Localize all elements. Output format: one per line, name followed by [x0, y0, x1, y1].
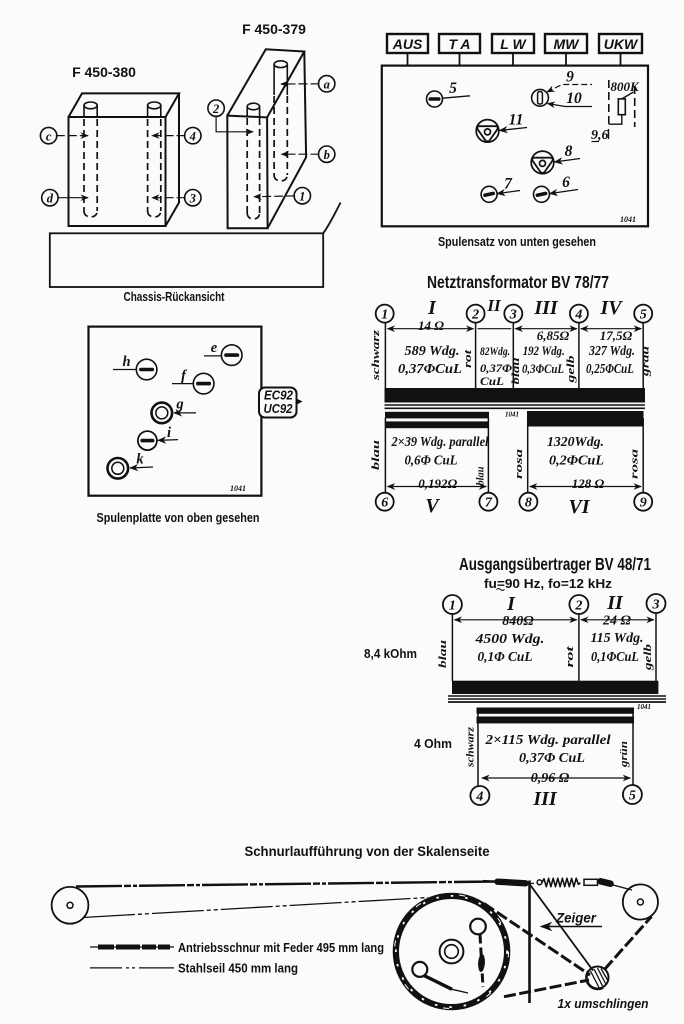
svg-text:1041: 1041: [620, 215, 636, 224]
svg-text:8: 8: [565, 143, 573, 160]
svg-text:0,96 Ω: 0,96 Ω: [531, 771, 570, 786]
svg-text:IV: IV: [599, 297, 623, 319]
svg-text:1x umschlingen: 1x umschlingen: [558, 996, 649, 1011]
svg-text:Spulenplatte von oben gesehen: Spulenplatte von oben gesehen: [97, 510, 260, 525]
svg-text:0,2ΦCuL: 0,2ΦCuL: [549, 454, 604, 469]
svg-text:1041: 1041: [230, 484, 246, 493]
svg-text:0,25ΦCuL: 0,25ΦCuL: [586, 362, 634, 377]
svg-text:2×39 Wdg. parallel: 2×39 Wdg. parallel: [391, 435, 489, 450]
svg-text:840Ω: 840Ω: [502, 614, 534, 629]
svg-text:3: 3: [509, 308, 517, 323]
svg-text:rot: rot: [462, 349, 474, 368]
svg-text:rosa: rosa: [629, 448, 641, 479]
svg-text:Chassis-Rückansicht: Chassis-Rückansicht: [124, 289, 226, 304]
svg-text:Schnurlaufführung von der Skal: Schnurlaufführung von der Skalenseite: [245, 843, 490, 859]
svg-text:589 Wdg.: 589 Wdg.: [405, 344, 460, 359]
svg-text:gelb: gelb: [565, 355, 577, 384]
svg-text:Zeiger: Zeiger: [555, 910, 597, 926]
svg-text:327 Wdg.: 327 Wdg.: [588, 344, 635, 359]
svg-text:0,37ΦCuL: 0,37ΦCuL: [398, 362, 462, 377]
svg-text:4 Ohm: 4 Ohm: [414, 737, 452, 751]
svg-text:14 Ω: 14 Ω: [418, 318, 444, 333]
svg-text:3: 3: [189, 192, 196, 206]
svg-text:5: 5: [640, 308, 647, 323]
svg-text:blau: blau: [510, 358, 522, 385]
svg-text:c: c: [46, 130, 52, 144]
svg-text:schwarz: schwarz: [465, 726, 477, 768]
svg-text:L W: L W: [500, 36, 527, 52]
svg-text:1041: 1041: [637, 703, 651, 711]
svg-text:k: k: [136, 452, 144, 468]
svg-text:III: III: [533, 297, 559, 319]
svg-text:192 Wdg.: 192 Wdg.: [523, 343, 565, 358]
svg-text:5: 5: [449, 80, 457, 97]
svg-text:e: e: [211, 340, 218, 356]
svg-text:0,37Φ CuL: 0,37Φ CuL: [519, 751, 585, 766]
svg-text:7: 7: [504, 176, 513, 193]
svg-text:24 Ω: 24 Ω: [602, 614, 632, 629]
svg-text:i: i: [167, 425, 171, 441]
svg-text:II: II: [606, 592, 624, 614]
svg-text:9: 9: [640, 496, 647, 511]
svg-text:1: 1: [381, 308, 388, 323]
svg-text:h: h: [122, 354, 130, 370]
svg-text:6,85Ω: 6,85Ω: [537, 328, 570, 343]
svg-text:F 450-379: F 450-379: [242, 21, 306, 37]
svg-text:Spulensatz von unten gesehen: Spulensatz von unten gesehen: [438, 234, 596, 249]
svg-text:115 Wdg.: 115 Wdg.: [591, 631, 644, 646]
svg-text:grau: grau: [640, 346, 652, 377]
svg-text:Ausgangsübertrager BV 48/71: Ausgangsübertrager BV 48/71: [459, 554, 651, 574]
svg-text:Antriebsschnur mit Feder 495 m: Antriebsschnur mit Feder 495 mm lang: [178, 941, 384, 955]
svg-text:5: 5: [629, 789, 636, 804]
svg-text:2×115 Wdg. parallel: 2×115 Wdg. parallel: [484, 733, 610, 748]
svg-text:gelb: gelb: [642, 643, 654, 671]
svg-text:T A: T A: [448, 36, 470, 52]
svg-text:F 450-380: F 450-380: [72, 64, 136, 80]
svg-text:rosa: rosa: [513, 448, 525, 479]
svg-text:MW: MW: [554, 36, 581, 52]
svg-text:Stahlseil 450 mm lang: Stahlseil 450 mm lang: [178, 962, 298, 976]
svg-text:9: 9: [566, 69, 574, 86]
svg-text:4: 4: [189, 130, 196, 144]
svg-text:UKW: UKW: [604, 36, 639, 52]
svg-text:d: d: [47, 192, 54, 206]
svg-text:blau: blau: [437, 640, 449, 668]
svg-text:10: 10: [566, 90, 582, 107]
svg-text:82Wdg.: 82Wdg.: [480, 344, 510, 358]
svg-text:4: 4: [574, 308, 582, 323]
svg-text:1320Wdg.: 1320Wdg.: [547, 435, 604, 450]
svg-text:blau: blau: [370, 440, 382, 470]
svg-text:7: 7: [485, 496, 493, 511]
svg-text:800K: 800K: [611, 79, 641, 94]
svg-text:0,1Φ CuL: 0,1Φ CuL: [478, 650, 533, 665]
svg-text:VI: VI: [568, 496, 590, 518]
svg-text:III: III: [532, 788, 558, 810]
svg-text:0,1ΦCuL: 0,1ΦCuL: [591, 650, 639, 665]
svg-text:4500 Wdg.: 4500 Wdg.: [474, 632, 544, 647]
svg-text:6: 6: [562, 174, 570, 191]
svg-text:11: 11: [509, 112, 524, 129]
svg-text:0,37Φ: 0,37Φ: [480, 361, 513, 375]
svg-text:b: b: [324, 148, 330, 162]
svg-text:I: I: [506, 593, 516, 615]
svg-text:Netztransformator BV 78/77: Netztransformator BV 78/77: [427, 272, 609, 292]
svg-text:AUS: AUS: [392, 36, 423, 52]
svg-text:0,192Ω: 0,192Ω: [418, 476, 457, 491]
svg-text:4: 4: [475, 790, 483, 805]
svg-text:EC92: EC92: [264, 389, 293, 403]
svg-text:128 Ω: 128 Ω: [572, 476, 605, 491]
svg-text:schwarz: schwarz: [370, 329, 382, 381]
svg-text:rot: rot: [564, 645, 576, 668]
svg-text:a: a: [324, 78, 330, 92]
svg-text:CuL: CuL: [480, 374, 504, 388]
svg-text:UC92: UC92: [264, 402, 293, 416]
svg-text:1: 1: [299, 190, 305, 204]
svg-text:17,5Ω: 17,5Ω: [600, 328, 633, 343]
svg-text:g: g: [175, 397, 183, 413]
svg-text:9,6: 9,6: [591, 128, 609, 143]
svg-text:1041: 1041: [505, 411, 519, 419]
svg-text:fu=90 Hz, fo=12 kHz: fu=90 Hz, fo=12 kHz: [484, 576, 613, 591]
svg-text:grün: grün: [618, 741, 630, 768]
svg-text:1: 1: [449, 599, 456, 614]
svg-text:0,6Φ CuL: 0,6Φ CuL: [405, 454, 458, 469]
svg-text:2: 2: [212, 102, 219, 116]
svg-text:0,3ΦCuL: 0,3ΦCuL: [522, 361, 564, 376]
svg-text:8,4 kOhm: 8,4 kOhm: [364, 647, 417, 661]
svg-text:blau: blau: [475, 467, 487, 486]
svg-text:2: 2: [471, 308, 479, 323]
svg-text:I: I: [427, 297, 437, 319]
svg-text:8: 8: [525, 496, 532, 511]
svg-text:2: 2: [574, 599, 582, 614]
svg-text:II: II: [486, 296, 502, 315]
svg-text:V: V: [425, 495, 440, 517]
svg-text:3: 3: [652, 598, 660, 613]
svg-text:6: 6: [381, 496, 388, 511]
